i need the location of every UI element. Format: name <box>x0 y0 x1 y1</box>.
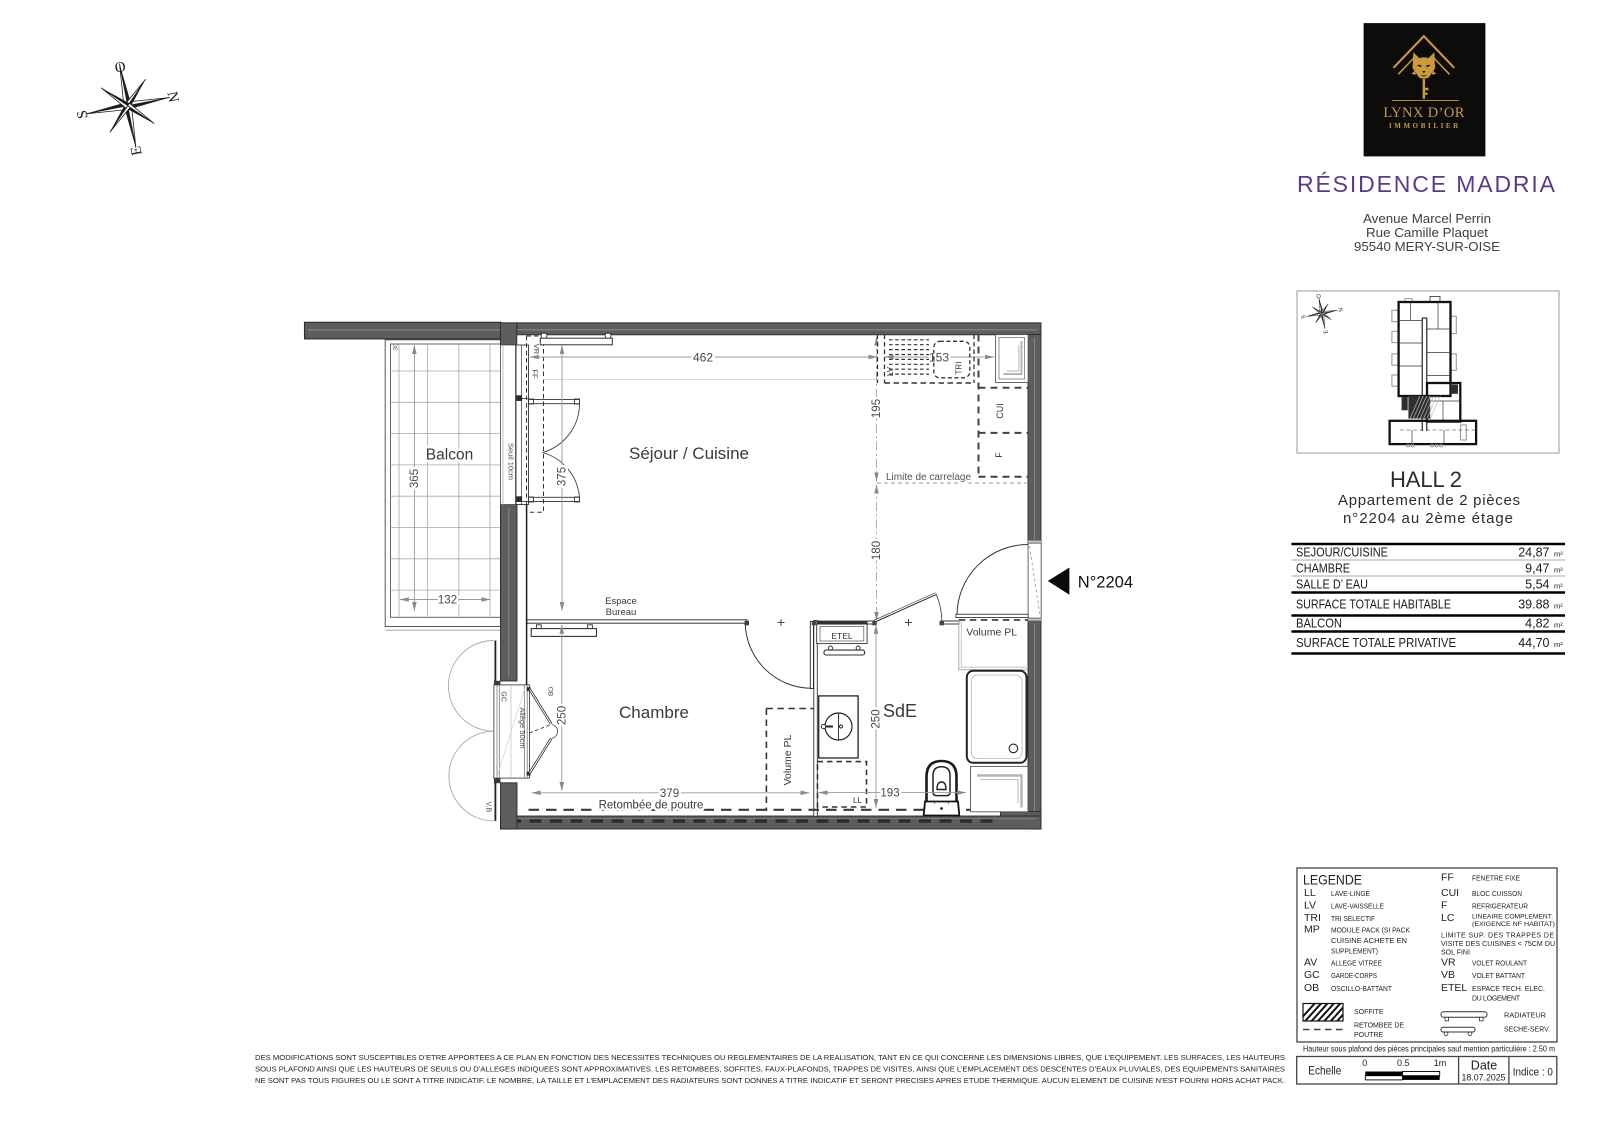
svg-text:RETOMBEE DE: RETOMBEE DE <box>1354 1023 1404 1030</box>
svg-text:CUI: CUI <box>995 403 1005 419</box>
svg-text:Limite de carrelage: Limite de carrelage <box>886 472 971 483</box>
svg-text:VR: VR <box>532 344 541 355</box>
svg-text:Date: Date <box>1471 1059 1497 1073</box>
svg-text:VR: VR <box>1441 957 1456 969</box>
svg-text:VOLET ROULANT: VOLET ROULANT <box>1472 961 1528 968</box>
svg-text:180: 180 <box>871 541 883 560</box>
svg-text:Espace: Espace <box>605 596 637 607</box>
svg-text:LYNX D’OR: LYNX D’OR <box>1383 105 1464 121</box>
svg-text:DU LOGEMENT: DU LOGEMENT <box>1472 996 1521 1003</box>
svg-text:195: 195 <box>871 399 883 418</box>
svg-text:m²: m² <box>1554 582 1563 591</box>
svg-text:F: F <box>1441 900 1447 912</box>
svg-text:Seuil 10cm: Seuil 10cm <box>507 443 516 480</box>
svg-text:m²: m² <box>1554 621 1563 630</box>
svg-text:FENETRE FIXE: FENETRE FIXE <box>1472 876 1520 883</box>
svg-text:Rue Camille Plaquet: Rue Camille Plaquet <box>1366 226 1489 240</box>
svg-text:SUPPLEMENT): SUPPLEMENT) <box>1331 949 1378 956</box>
svg-text:GARDE-CORPS: GARDE-CORPS <box>1331 973 1377 980</box>
svg-text:MODULE PACK (SI PACK: MODULE PACK (SI PACK <box>1331 928 1410 935</box>
svg-text:POUTRE: POUTRE <box>1354 1032 1384 1039</box>
svg-text:VB: VB <box>1441 969 1455 981</box>
svg-text:TRI: TRI <box>955 362 964 375</box>
svg-text:250: 250 <box>871 709 883 728</box>
svg-text:Chambre: Chambre <box>619 703 689 722</box>
svg-text:44,70: 44,70 <box>1518 636 1549 650</box>
svg-text:375: 375 <box>557 467 569 486</box>
svg-text:MP: MP <box>1304 924 1320 936</box>
svg-text:ETEL: ETEL <box>1441 982 1467 994</box>
svg-text:193: 193 <box>880 788 899 800</box>
svg-text:(EXIGENCE NF HABITAT): (EXIGENCE NF HABITAT) <box>1472 921 1555 928</box>
svg-text:E: E <box>128 145 145 157</box>
svg-text:SURFACE TOTALE PRIVATIVE: SURFACE TOTALE PRIVATIVE <box>1296 636 1456 650</box>
svg-text:VISITE DES CUISINES < 75CM DU: VISITE DES CUISINES < 75CM DU <box>1441 941 1555 948</box>
svg-text:LV: LV <box>1304 900 1316 912</box>
svg-text:BLOC CUISSON: BLOC CUISSON <box>1472 891 1522 898</box>
svg-text:OB: OB <box>1304 982 1319 994</box>
svg-text:Echelle: Echelle <box>1308 1064 1341 1078</box>
svg-text:9,47: 9,47 <box>1525 562 1549 576</box>
svg-text:SdE: SdE <box>883 701 917 721</box>
svg-text:CHAMBRE: CHAMBRE <box>1296 562 1350 576</box>
svg-text:S: S <box>74 109 91 120</box>
svg-text:TRI: TRI <box>1304 912 1321 924</box>
svg-text:39.88: 39.88 <box>1518 598 1549 612</box>
svg-text:24,87: 24,87 <box>1518 546 1549 560</box>
svg-text:Appartement de 2 pièces: Appartement de 2 pièces <box>1338 492 1520 509</box>
svg-text:m²: m² <box>1554 566 1563 575</box>
svg-text:O: O <box>114 59 128 77</box>
svg-text:Retombée de poutre: Retombée de poutre <box>599 800 704 812</box>
svg-text:REFRIGERATEUR: REFRIGERATEUR <box>1472 904 1528 911</box>
svg-text:m²: m² <box>1554 602 1563 611</box>
svg-text:LAVE-VAISSELLE: LAVE-VAISSELLE <box>1331 904 1384 911</box>
svg-text:SOFFITE: SOFFITE <box>1354 1009 1384 1016</box>
svg-text:SECHE-SERV.: SECHE-SERV. <box>1504 1027 1550 1034</box>
svg-text:SEJOUR/CUISINE: SEJOUR/CUISINE <box>1296 546 1388 560</box>
svg-text:LL: LL <box>1304 887 1316 899</box>
svg-text:GC: GC <box>500 691 507 702</box>
svg-text:153: 153 <box>929 350 949 364</box>
svg-text:FF: FF <box>1441 872 1454 884</box>
svg-text:OSCILLO-BATTANT: OSCILLO-BATTANT <box>1331 986 1393 993</box>
svg-text:ETEL: ETEL <box>831 631 853 641</box>
svg-text:F: F <box>994 452 1004 458</box>
svg-text:LL: LL <box>853 796 862 805</box>
svg-text:CUI: CUI <box>1441 887 1459 899</box>
svg-text:LEGENDE: LEGENDE <box>1303 872 1362 888</box>
svg-text:SOL FINI: SOL FINI <box>1441 950 1470 957</box>
svg-text:N: N <box>163 90 181 104</box>
svg-text:n°2204 au 2ème étage: n°2204 au 2ème étage <box>1343 510 1513 527</box>
svg-text:18.07.2025: 18.07.2025 <box>1462 1073 1506 1083</box>
svg-text:250: 250 <box>556 706 568 725</box>
svg-text:0.5: 0.5 <box>1397 1058 1410 1068</box>
svg-text:379: 379 <box>660 788 679 800</box>
svg-text:TRI SELECTIF: TRI SELECTIF <box>1331 916 1375 923</box>
svg-text:LAVE-LINGE: LAVE-LINGE <box>1331 891 1370 898</box>
svg-text:LC: LC <box>1441 912 1455 924</box>
svg-text:132: 132 <box>438 594 457 606</box>
svg-text:DES MODIFICATIONS SONT SUSCEPT: DES MODIFICATIONS SONT SUSCEPTIBLES D’ET… <box>255 1053 1285 1062</box>
svg-text:SALLE D’ EAU: SALLE D’ EAU <box>1296 578 1368 592</box>
svg-text:RÉSIDENCE MADRIA: RÉSIDENCE MADRIA <box>1297 171 1556 197</box>
svg-text:Hauteur sous plafond des pièce: Hauteur sous plafond des pièces principa… <box>1303 1044 1555 1054</box>
svg-text:LV: LV <box>886 366 895 376</box>
svg-text:HALL 2: HALL 2 <box>1390 467 1462 492</box>
svg-text:V.B: V.B <box>484 801 491 812</box>
svg-text:Volume PL: Volume PL <box>782 734 794 785</box>
svg-text:FF: FF <box>531 369 540 379</box>
svg-text:Avenue Marcel Perrin: Avenue Marcel Perrin <box>1363 212 1491 226</box>
svg-text:0: 0 <box>1362 1058 1367 1068</box>
svg-text:ALLEGE VITREE: ALLEGE VITREE <box>1331 961 1382 968</box>
svg-text:ESPACE TECH. ELEC.: ESPACE TECH. ELEC. <box>1472 986 1545 993</box>
svg-text:IMMOBILIER: IMMOBILIER <box>1389 122 1461 130</box>
svg-text:Volume PL: Volume PL <box>966 627 1017 639</box>
svg-text:LINEAIRE COMPLEMENT.: LINEAIRE COMPLEMENT. <box>1472 914 1553 921</box>
svg-text:AV: AV <box>1304 957 1317 969</box>
svg-text:BALCON: BALCON <box>1296 617 1342 631</box>
svg-text:Allège 50cm: Allège 50cm <box>518 707 527 748</box>
svg-text:GC: GC <box>1304 969 1320 981</box>
svg-text:1m: 1m <box>1434 1058 1447 1068</box>
svg-text:RADIATEUR: RADIATEUR <box>1504 1013 1546 1020</box>
svg-text:SOUS PLAFOND AINSI QUE LES HAU: SOUS PLAFOND AINSI QUE LES HAUTEURS DE S… <box>255 1065 1285 1074</box>
svg-text:5,54: 5,54 <box>1525 578 1549 592</box>
svg-text:95540 MERY-SUR-OISE: 95540 MERY-SUR-OISE <box>1354 240 1500 254</box>
svg-text:Bureau: Bureau <box>606 607 637 618</box>
svg-text:Indice : 0: Indice : 0 <box>1513 1067 1553 1079</box>
svg-text:Séjour / Cuisine: Séjour / Cuisine <box>629 444 749 463</box>
svg-text:462: 462 <box>693 350 713 364</box>
svg-text:m²: m² <box>1554 550 1563 559</box>
svg-text:NE SONT PAS TOUS FIGURES OU LE: NE SONT PAS TOUS FIGURES OU LE SONT A TI… <box>255 1076 1285 1085</box>
svg-text:OB: OB <box>547 687 554 696</box>
svg-text:Balcon: Balcon <box>426 447 473 464</box>
svg-text:4,82: 4,82 <box>1525 617 1549 631</box>
svg-text:N°2204: N°2204 <box>1078 574 1133 592</box>
svg-text:m²: m² <box>1554 640 1563 649</box>
svg-text:365: 365 <box>409 469 421 488</box>
svg-text:SURFACE TOTALE HABITABLE: SURFACE TOTALE HABITABLE <box>1296 598 1451 612</box>
svg-text:CUISINE ACHETE EN: CUISINE ACHETE EN <box>1331 938 1407 945</box>
svg-text:30: 30 <box>393 343 400 351</box>
svg-text:LIMITE SUP. DES TRAPPES DE: LIMITE SUP. DES TRAPPES DE <box>1441 933 1554 940</box>
svg-text:VOLET BATTANT: VOLET BATTANT <box>1472 973 1526 980</box>
